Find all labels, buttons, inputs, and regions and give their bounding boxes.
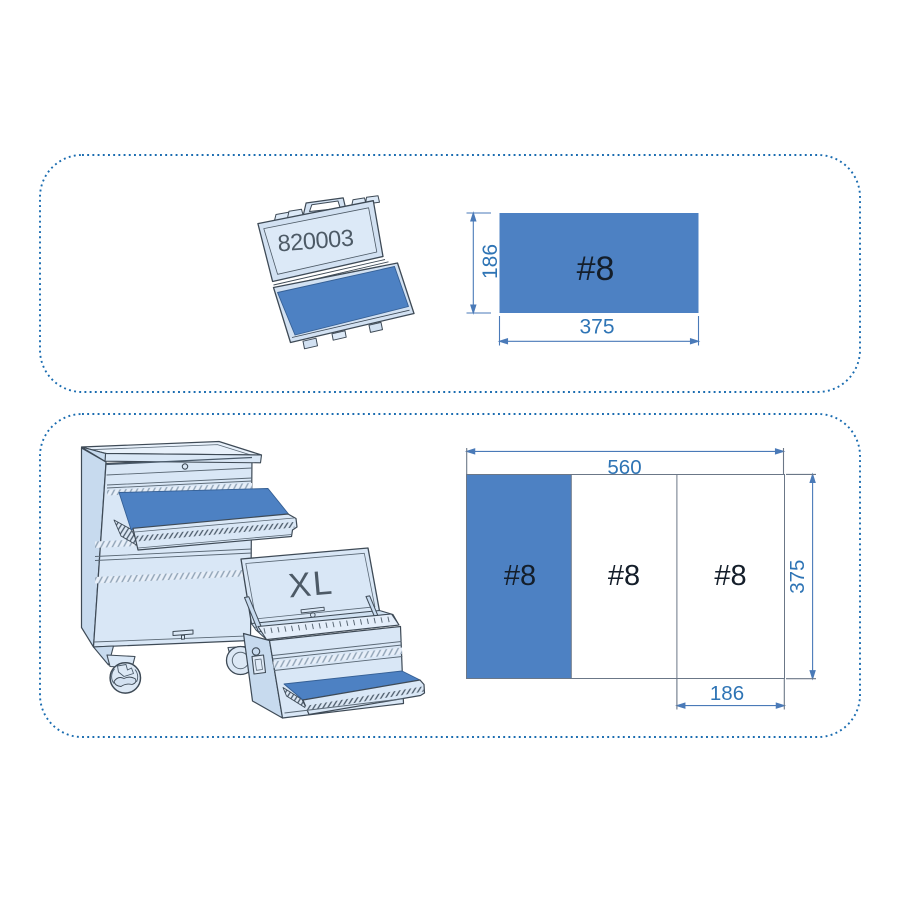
svg-text:375: 375 xyxy=(579,316,614,339)
svg-text:375: 375 xyxy=(786,560,809,594)
svg-text:#8: #8 xyxy=(504,560,536,592)
svg-text:XL: XL xyxy=(287,564,336,606)
svg-text:186: 186 xyxy=(479,244,502,279)
svg-text:560: 560 xyxy=(607,456,641,479)
svg-text:#8: #8 xyxy=(608,560,640,592)
svg-text:#8: #8 xyxy=(714,560,746,592)
svg-text:186: 186 xyxy=(710,682,744,705)
svg-text:#8: #8 xyxy=(577,250,615,288)
